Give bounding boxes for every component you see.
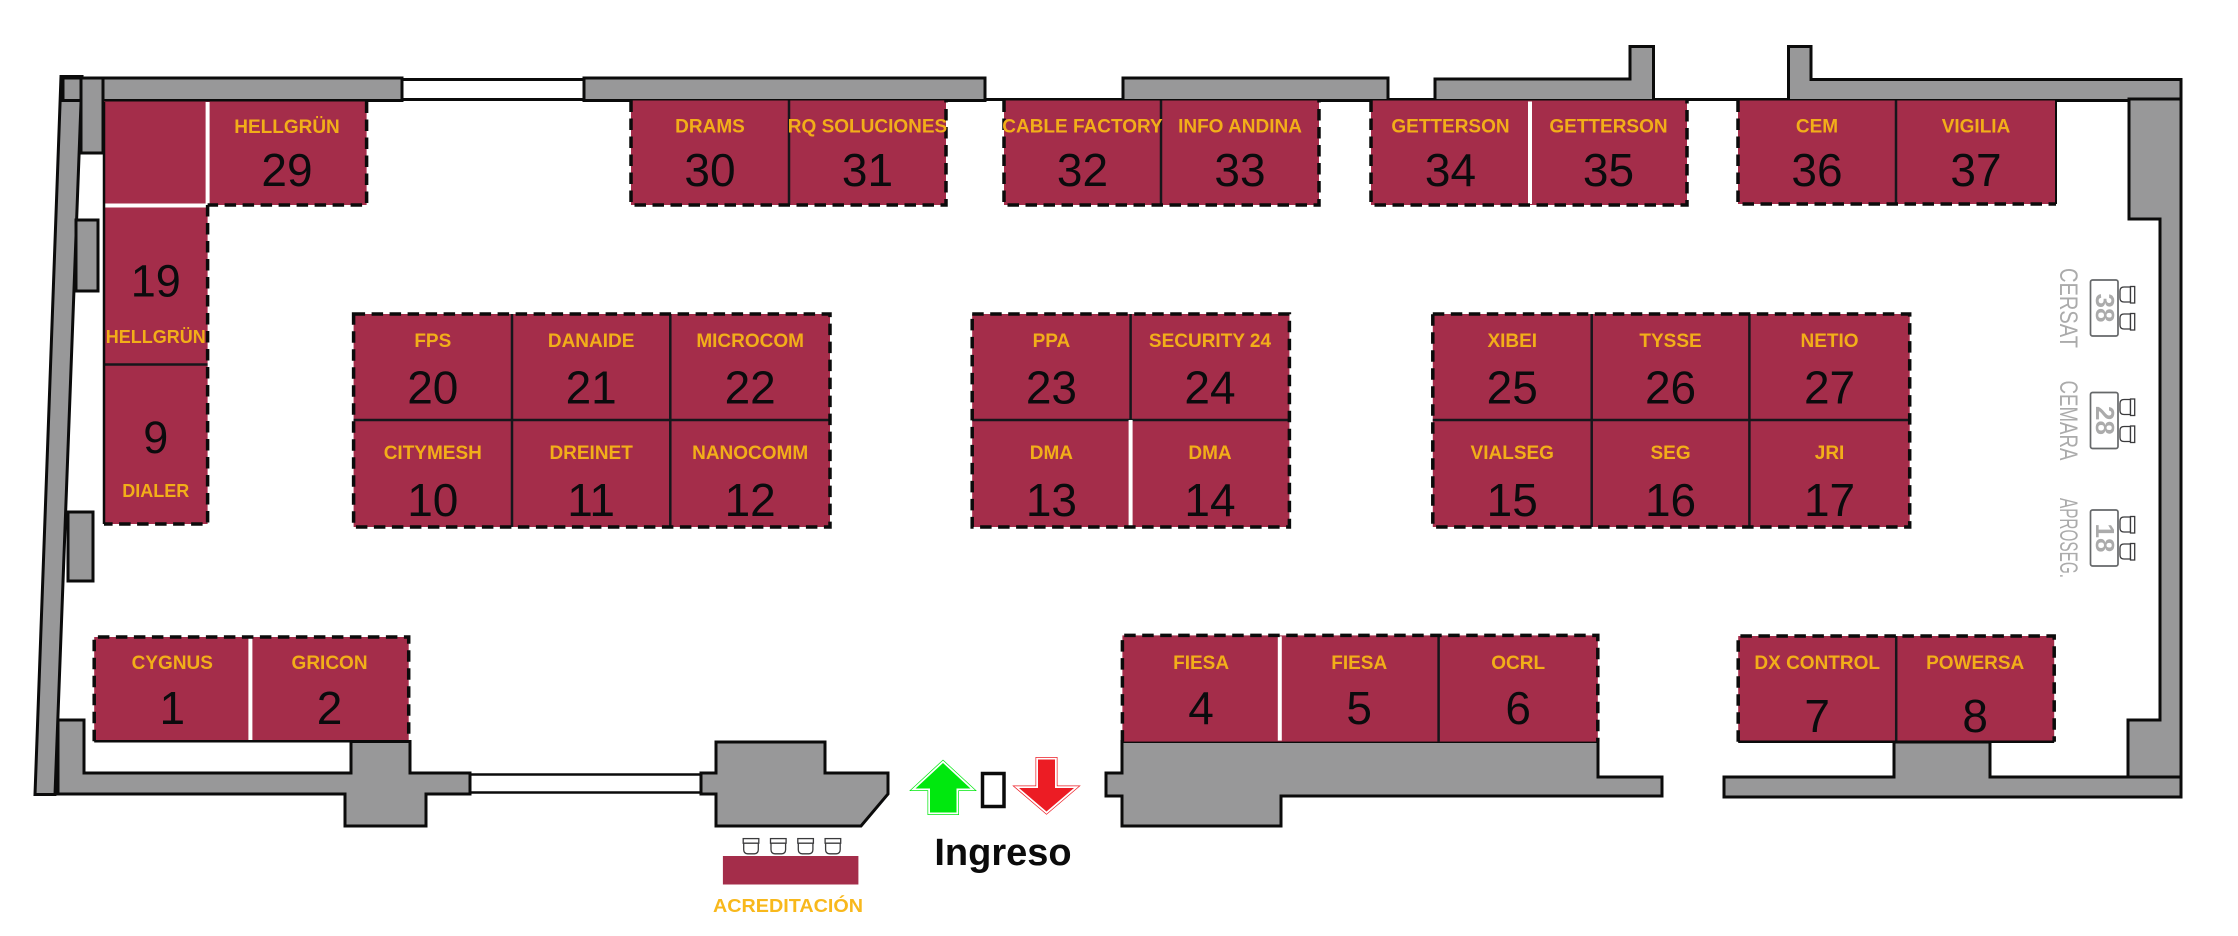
svg-text:32: 32 (1057, 144, 1108, 196)
svg-text:31: 31 (842, 144, 893, 196)
svg-text:19: 19 (131, 256, 181, 307)
svg-text:CERSAT: CERSAT (2054, 268, 2082, 348)
svg-text:NETIO: NETIO (1801, 331, 1859, 352)
svg-text:23: 23 (1026, 362, 1077, 414)
svg-text:Ingreso: Ingreso (934, 832, 1071, 874)
svg-text:APROSEG.: APROSEG. (2054, 498, 2082, 578)
svg-text:GRICON: GRICON (292, 653, 368, 674)
svg-text:DX CONTROL: DX CONTROL (1754, 653, 1880, 674)
svg-text:34: 34 (1425, 144, 1476, 196)
svg-text:30: 30 (684, 144, 735, 196)
svg-text:GETTERSON: GETTERSON (1549, 117, 1667, 138)
svg-text:OCRL: OCRL (1491, 653, 1545, 674)
svg-text:HELLGRÜN: HELLGRÜN (234, 117, 340, 138)
svg-text:28: 28 (2090, 406, 2120, 435)
svg-text:DMA: DMA (1188, 443, 1232, 464)
svg-text:GETTERSON: GETTERSON (1391, 117, 1509, 138)
svg-text:TYSSE: TYSSE (1639, 331, 1701, 352)
svg-text:10: 10 (407, 474, 458, 526)
svg-text:FIESA: FIESA (1331, 653, 1387, 674)
svg-text:38: 38 (2090, 294, 2120, 323)
svg-text:JRI: JRI (1815, 443, 1845, 464)
svg-text:FIESA: FIESA (1173, 653, 1229, 674)
svg-text:VIGILIA: VIGILIA (1942, 117, 2011, 138)
svg-text:9: 9 (143, 412, 168, 463)
svg-text:CABLE FACTORY: CABLE FACTORY (1002, 117, 1163, 138)
svg-text:33: 33 (1214, 144, 1265, 196)
svg-text:1: 1 (160, 682, 186, 734)
svg-text:XIBEI: XIBEI (1487, 331, 1537, 352)
svg-text:29: 29 (261, 144, 312, 196)
svg-text:CEM: CEM (1796, 117, 1838, 138)
svg-text:MICROCOM: MICROCOM (696, 331, 804, 352)
svg-text:2: 2 (317, 682, 343, 734)
svg-text:DMA: DMA (1030, 443, 1074, 464)
svg-text:37: 37 (1950, 144, 2001, 196)
svg-text:35: 35 (1583, 144, 1634, 196)
svg-text:8: 8 (1962, 690, 1988, 742)
svg-text:FPS: FPS (414, 331, 451, 352)
svg-text:17: 17 (1804, 474, 1855, 526)
svg-text:SEG: SEG (1650, 443, 1690, 464)
svg-text:11: 11 (567, 474, 615, 526)
svg-text:24: 24 (1184, 362, 1235, 414)
svg-text:18: 18 (2090, 524, 2120, 553)
svg-text:ACREDITACIÓN: ACREDITACIÓN (713, 895, 863, 916)
svg-text:SECURITY 24: SECURITY 24 (1149, 331, 1272, 352)
svg-text:DIALER: DIALER (122, 481, 189, 501)
svg-text:20: 20 (407, 362, 458, 414)
svg-text:DREINET: DREINET (549, 443, 633, 464)
svg-text:12: 12 (725, 474, 776, 526)
svg-text:16: 16 (1645, 474, 1696, 526)
svg-text:NANOCOMM: NANOCOMM (692, 443, 808, 464)
svg-text:7: 7 (1804, 690, 1830, 742)
svg-text:HELLGRÜN: HELLGRÜN (106, 327, 206, 347)
svg-text:14: 14 (1184, 474, 1235, 526)
svg-text:DRAMS: DRAMS (675, 117, 745, 138)
svg-text:RQ SOLUCIONES: RQ SOLUCIONES (788, 117, 947, 138)
svg-text:6: 6 (1505, 682, 1531, 734)
svg-text:25: 25 (1487, 362, 1538, 414)
svg-text:CYGNUS: CYGNUS (132, 653, 213, 674)
svg-text:27: 27 (1804, 362, 1855, 414)
svg-text:CITYMESH: CITYMESH (384, 443, 482, 464)
svg-text:22: 22 (725, 362, 776, 414)
svg-text:13: 13 (1026, 474, 1077, 526)
svg-text:INFO ANDINA: INFO ANDINA (1178, 117, 1302, 138)
svg-text:PPA: PPA (1033, 331, 1071, 352)
svg-text:5: 5 (1346, 682, 1372, 734)
svg-text:4: 4 (1188, 682, 1214, 734)
svg-text:DANAIDE: DANAIDE (548, 331, 635, 352)
svg-text:POWERSA: POWERSA (1926, 653, 2024, 674)
svg-text:15: 15 (1487, 474, 1538, 526)
svg-text:26: 26 (1645, 362, 1696, 414)
svg-text:VIALSEG: VIALSEG (1471, 443, 1554, 464)
svg-text:CEMARA: CEMARA (2054, 381, 2082, 461)
svg-text:21: 21 (566, 362, 617, 414)
svg-text:36: 36 (1791, 144, 1842, 196)
